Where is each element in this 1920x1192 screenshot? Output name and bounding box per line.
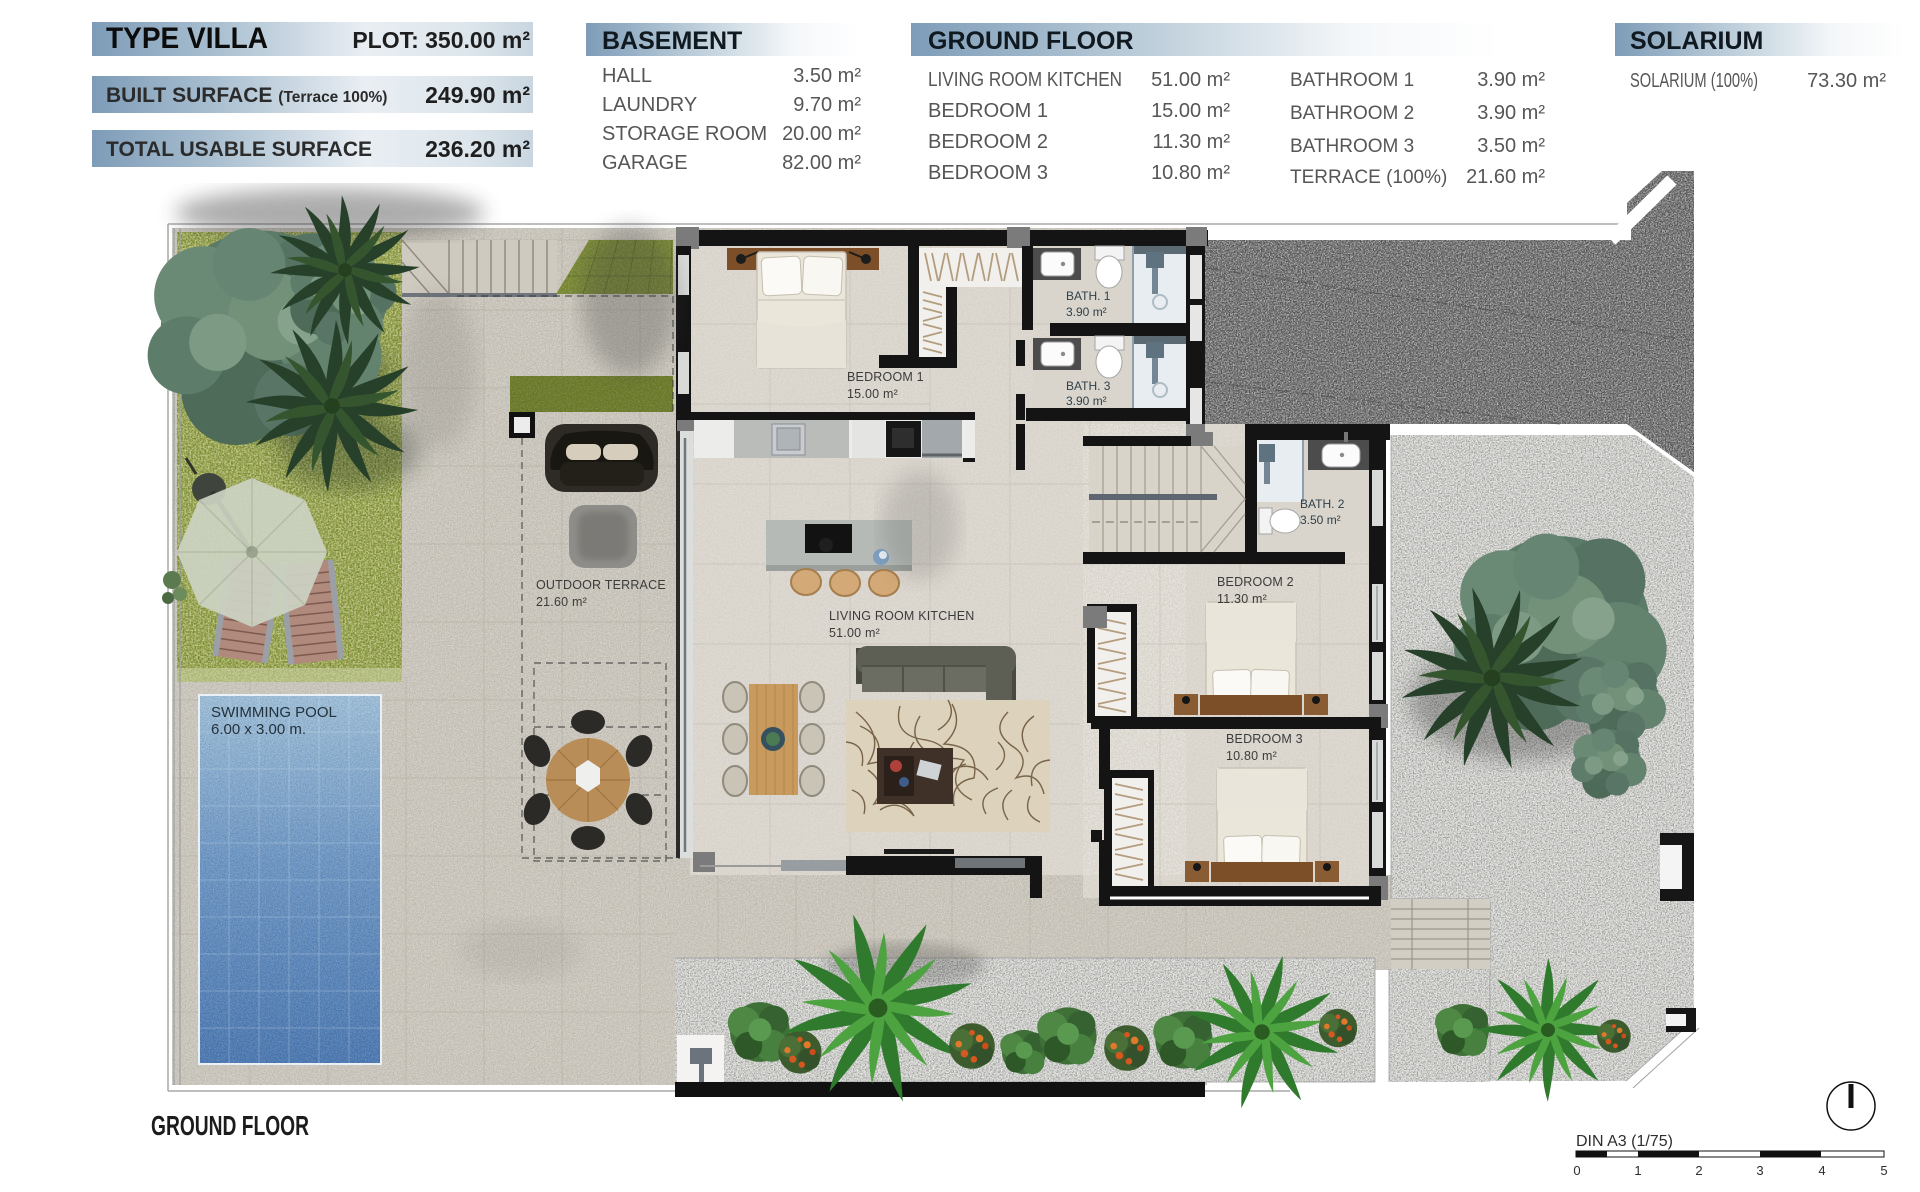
svg-text:BEDROOM 1: BEDROOM 1: [928, 100, 1048, 122]
svg-text:BATHROOM 3: BATHROOM 3: [1290, 136, 1414, 157]
svg-text:HALL: HALL: [602, 65, 652, 87]
svg-text:STORAGE ROOM: STORAGE ROOM: [602, 123, 767, 145]
svg-text:11.30 m²: 11.30 m²: [1153, 131, 1231, 153]
svg-text:BATH. 1: BATH. 1: [1066, 289, 1111, 303]
svg-text:5: 5: [1880, 1163, 1887, 1178]
svg-text:3.50 m²: 3.50 m²: [1300, 513, 1341, 527]
svg-text:GROUND FLOOR: GROUND FLOOR: [928, 27, 1134, 55]
svg-text:BEDROOM 3: BEDROOM 3: [928, 162, 1048, 184]
svg-text:BEDROOM 1: BEDROOM 1: [847, 370, 924, 384]
svg-text:3.90 m²: 3.90 m²: [1066, 394, 1107, 408]
svg-text:20.00 m²: 20.00 m²: [782, 123, 861, 145]
svg-text:249.90 m²: 249.90 m²: [425, 82, 530, 108]
svg-text:73.30 m²: 73.30 m²: [1807, 70, 1886, 92]
svg-text:2: 2: [1695, 1163, 1702, 1178]
svg-text:DIN A3 (1/75): DIN A3 (1/75): [1576, 1133, 1673, 1150]
svg-text:236.20 m²: 236.20 m²: [425, 136, 530, 162]
svg-text:10.80 m²: 10.80 m²: [1226, 749, 1277, 763]
svg-text:21.60 m²: 21.60 m²: [1466, 166, 1545, 188]
svg-text:3.90 m²: 3.90 m²: [1477, 69, 1545, 91]
svg-text:82.00 m²: 82.00 m²: [782, 152, 861, 174]
svg-text:BEDROOM 3: BEDROOM 3: [1226, 732, 1303, 746]
svg-text:BEDROOM 2: BEDROOM 2: [1217, 575, 1294, 589]
svg-text:15.00 m²: 15.00 m²: [847, 387, 898, 401]
svg-text:3.90 m²: 3.90 m²: [1477, 102, 1545, 124]
svg-text:3: 3: [1756, 1163, 1763, 1178]
svg-text:SOLARIUM: SOLARIUM: [1630, 27, 1763, 55]
svg-text:GROUND FLOOR: GROUND FLOOR: [151, 1110, 309, 1141]
svg-text:0: 0: [1573, 1163, 1580, 1178]
svg-text:51.00 m²: 51.00 m²: [829, 626, 880, 640]
svg-text:GARAGE: GARAGE: [602, 152, 688, 174]
svg-text:LIVING ROOM KITCHEN: LIVING ROOM KITCHEN: [829, 609, 974, 623]
svg-text:BEDROOM 2: BEDROOM 2: [928, 131, 1048, 153]
svg-text:TYPE VILLA: TYPE VILLA: [106, 22, 268, 55]
svg-text:11.30 m²: 11.30 m²: [1217, 592, 1267, 606]
svg-text:4: 4: [1818, 1163, 1825, 1178]
svg-text:6.00 x 3.00 m.: 6.00 x 3.00 m.: [211, 721, 306, 738]
svg-text:TERRACE (100%): TERRACE (100%): [1290, 167, 1447, 188]
svg-text:LIVING ROOM KITCHEN: LIVING ROOM KITCHEN: [928, 69, 1122, 91]
svg-text:21.60 m²: 21.60 m²: [536, 595, 587, 609]
svg-text:PLOT: 350.00 m²: PLOT: 350.00 m²: [352, 27, 530, 53]
svg-text:3.50 m²: 3.50 m²: [793, 65, 861, 87]
svg-text:1: 1: [1634, 1163, 1641, 1178]
svg-text:BASEMENT: BASEMENT: [602, 27, 742, 55]
svg-text:3.50 m²: 3.50 m²: [1477, 135, 1545, 157]
svg-text:10.80 m²: 10.80 m²: [1151, 162, 1230, 184]
svg-text:BATHROOM 2: BATHROOM 2: [1290, 103, 1414, 124]
svg-text:BATH. 2: BATH. 2: [1300, 497, 1345, 511]
svg-text:BATHROOM 1: BATHROOM 1: [1290, 70, 1414, 91]
svg-text:TOTAL USABLE SURFACE: TOTAL USABLE SURFACE: [106, 138, 372, 161]
svg-text:51.00 m²: 51.00 m²: [1151, 69, 1230, 91]
svg-text:15.00 m²: 15.00 m²: [1151, 100, 1230, 122]
svg-text:BATH. 3: BATH. 3: [1066, 379, 1111, 393]
svg-text:LAUNDRY: LAUNDRY: [602, 94, 697, 116]
svg-text:SOLARIUM (100%): SOLARIUM (100%): [1630, 70, 1758, 92]
svg-text:OUTDOOR TERRACE: OUTDOOR TERRACE: [536, 578, 666, 592]
svg-text:3.90 m²: 3.90 m²: [1066, 305, 1107, 319]
svg-text:SWIMMING POOL: SWIMMING POOL: [211, 704, 337, 721]
svg-text:9.70 m²: 9.70 m²: [793, 94, 861, 116]
